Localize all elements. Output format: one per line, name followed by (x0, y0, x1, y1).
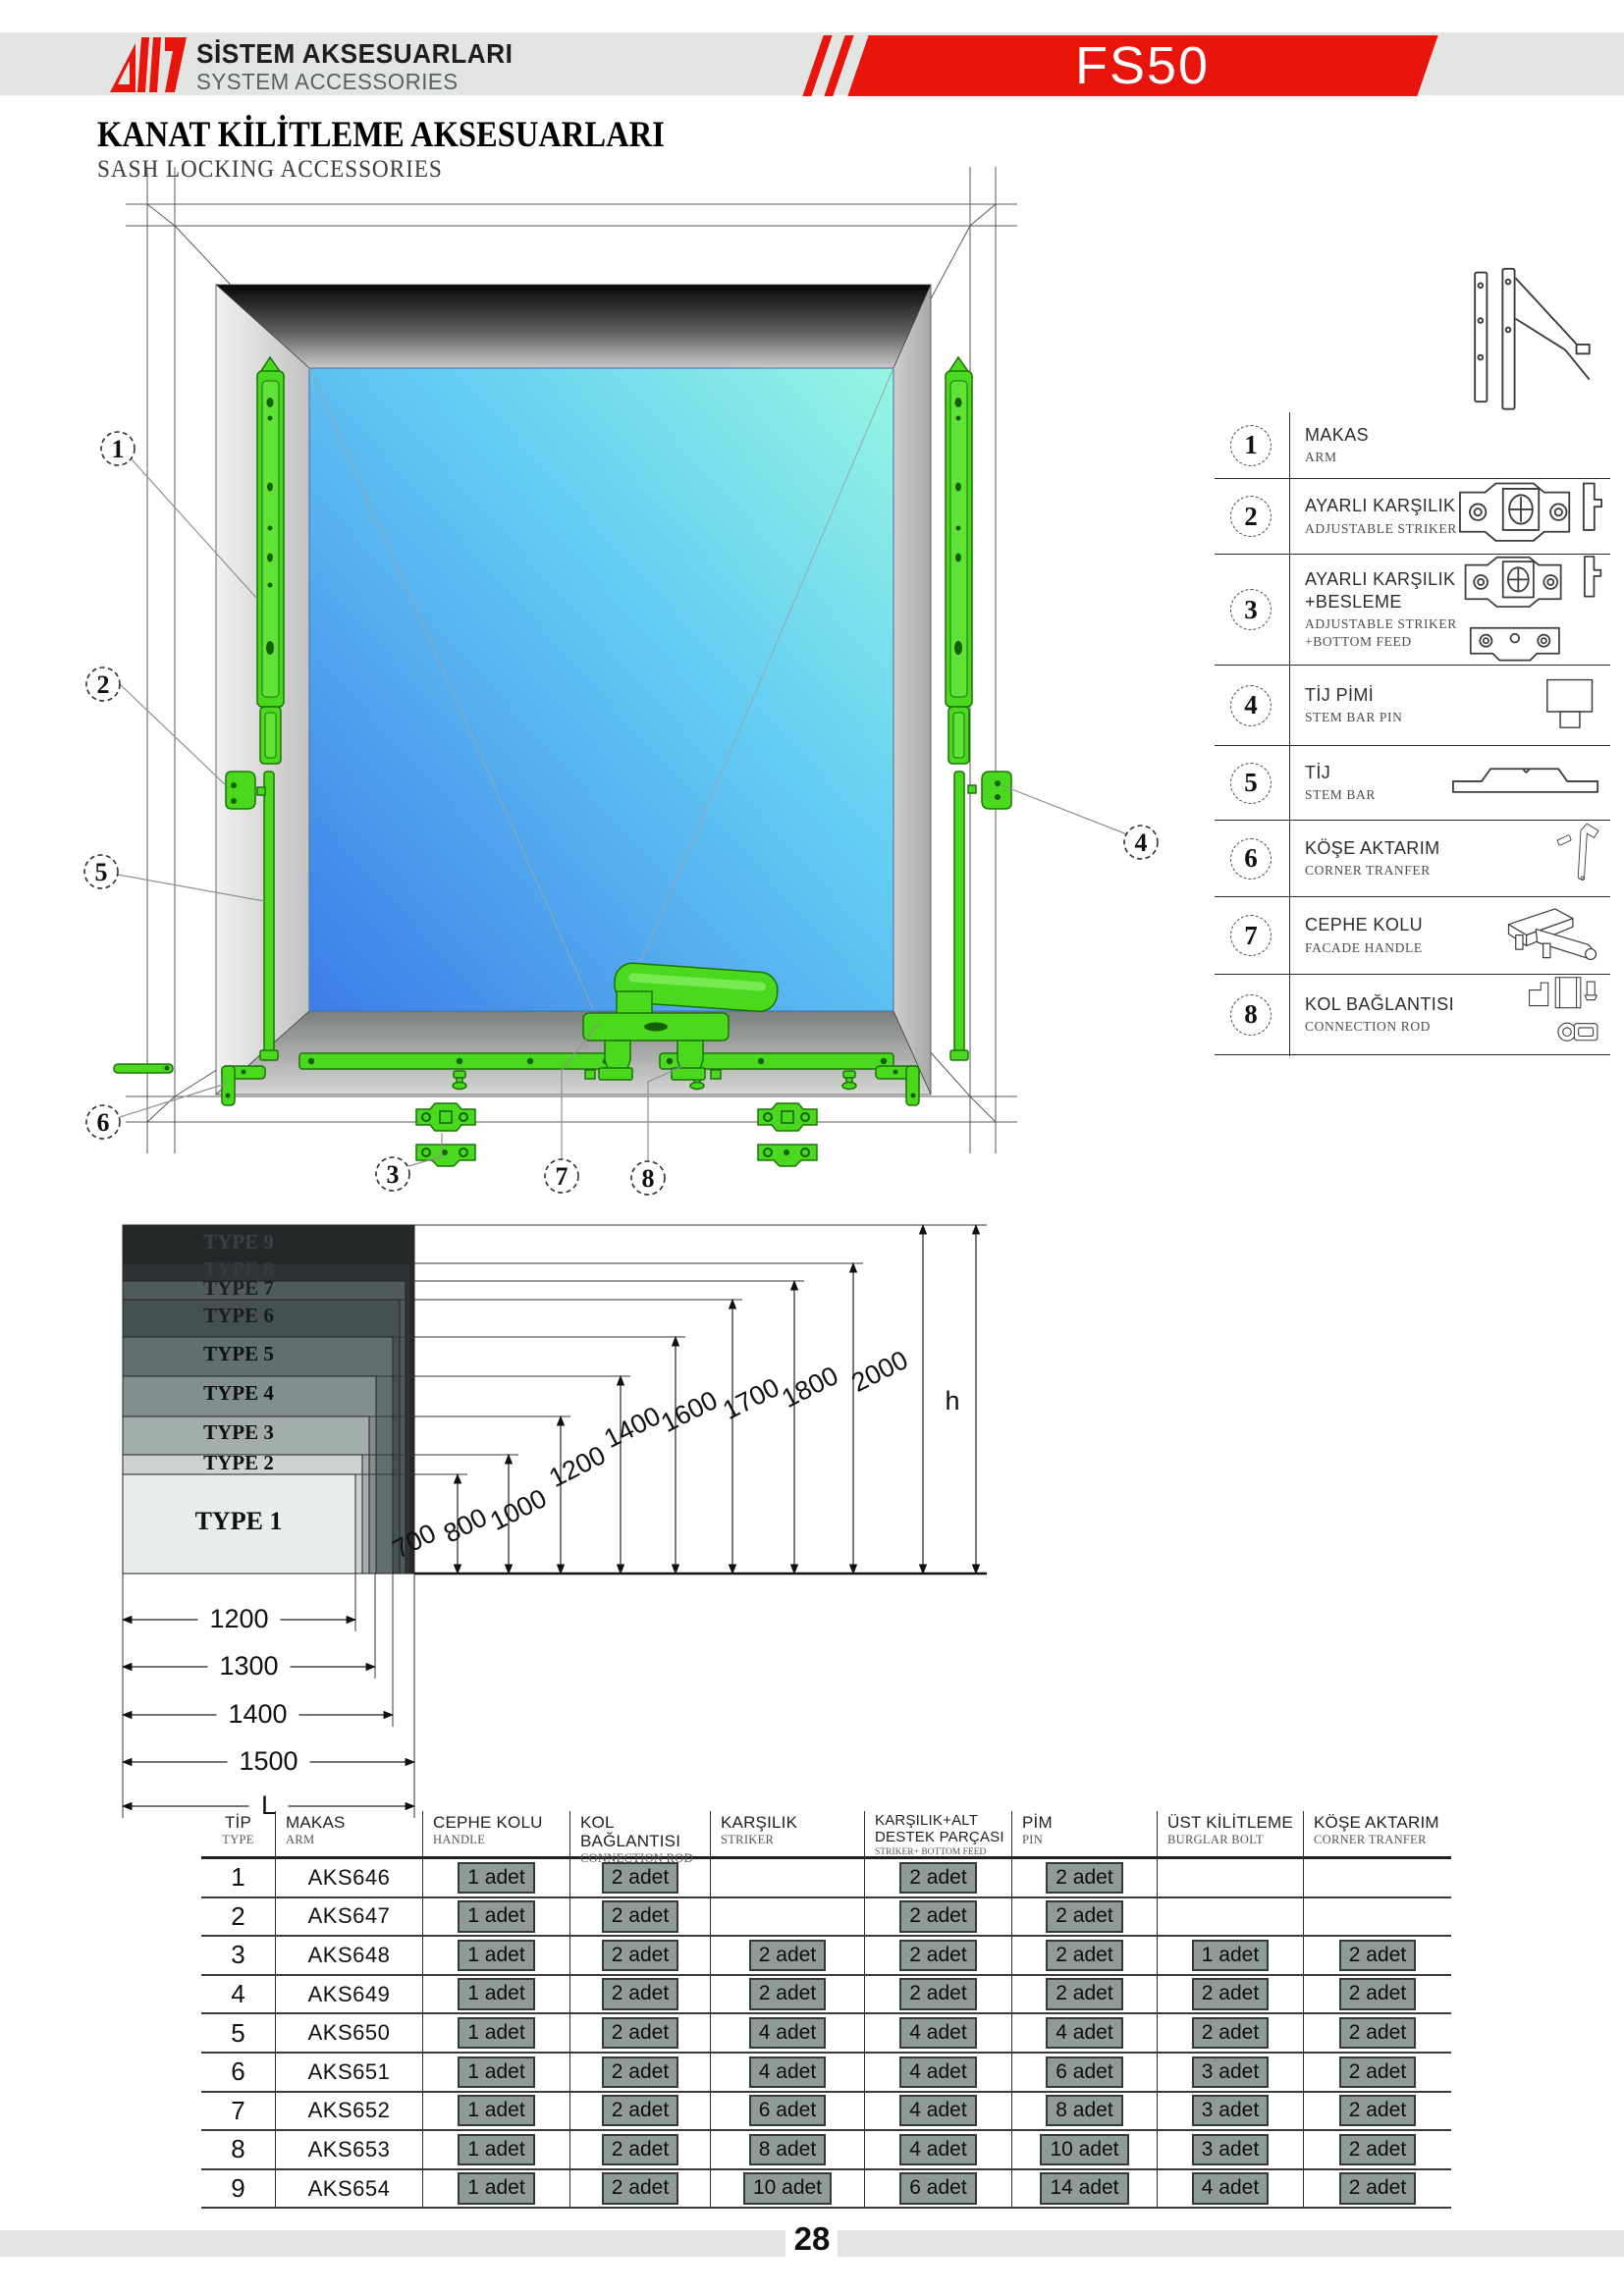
cell-qty-1: 1 adet (422, 2014, 569, 2052)
table-row-type-9: 9AKS6541 adet2 adet10 adet6 adet14 adet4… (201, 2170, 1451, 2210)
quantity-badge: 2 adet (899, 1940, 976, 1971)
cell-qty-2: 2 adet (569, 1937, 710, 1974)
cell-arm-code: AKS651 (275, 2054, 422, 2091)
column-header-tr: TİP (201, 1813, 275, 1832)
legend-item-7: 7CEPHE KOLUFACADE HANDLE (1215, 897, 1610, 975)
cell-qty-5: 6 adet (1011, 2054, 1157, 2091)
column-header-en: CORNER TRANFER (1314, 1833, 1451, 1847)
column-header-en: HANDLE (433, 1833, 569, 1847)
cell-qty-6 (1157, 1898, 1303, 1936)
cell-arm-code: AKS654 (275, 2170, 422, 2208)
cell-qty-3: 10 adet (710, 2170, 864, 2208)
svg-text:2: 2 (97, 670, 110, 699)
page-number: 28 (774, 2220, 850, 2258)
cell-qty-1: 1 adet (422, 2093, 569, 2130)
quantity-badge: 2 adet (602, 2095, 678, 2126)
legend-item-number: 5 (1230, 763, 1272, 804)
table-row-type-7: 7AKS6521 adet2 adet6 adet4 adet8 adet3 a… (201, 2093, 1451, 2132)
height-axis-label: h (945, 1386, 959, 1415)
cell-qty-6: 3 adet (1157, 2054, 1303, 2091)
cell-type: 6 (201, 2054, 275, 2091)
cell-qty-7: 2 adet (1303, 1976, 1451, 2013)
type-number: 4 (231, 1979, 244, 2009)
cell-type: 2 (201, 1898, 275, 1936)
legend-item-number: 3 (1230, 589, 1272, 630)
cell-qty-3: 4 adet (710, 2014, 864, 2052)
legend-item-number: 7 (1230, 915, 1272, 956)
legend-item-number: 8 (1230, 994, 1272, 1036)
cell-qty-2: 2 adet (569, 2014, 710, 2052)
svg-text:6: 6 (97, 1108, 110, 1137)
quantity-badge: 1 adet (458, 2095, 534, 2126)
cell-qty-2: 2 adet (569, 2170, 710, 2208)
striker-right (968, 772, 1011, 809)
cell-qty-5: 2 adet (1011, 1937, 1157, 1974)
cell-qty-6: 2 adet (1157, 1976, 1303, 2013)
adjustable-striker-bottom-feed-icon (1455, 550, 1604, 669)
cell-qty-3 (710, 1859, 864, 1896)
column-header-8: ÜST KİLİTLEMEBURGLAR BOLT (1157, 1811, 1303, 1866)
table-row-type-5: 5AKS6501 adet2 adet4 adet4 adet4 adet2 a… (201, 2014, 1451, 2054)
quantity-badge: 2 adet (602, 2056, 678, 2088)
cell-qty-7: 2 adet (1303, 1937, 1451, 1974)
cell-qty-5: 14 adet (1011, 2170, 1157, 2208)
quantity-badge: 2 adet (602, 2172, 678, 2204)
column-header-9: KÖŞE AKTARIMCORNER TRANFER (1303, 1811, 1451, 1866)
arm-code: AKS651 (308, 2059, 391, 2085)
cell-qty-1: 1 adet (422, 1976, 569, 2013)
cell-qty-5: 4 adet (1011, 2014, 1157, 2052)
quantity-badge: 2 adet (1339, 1940, 1416, 1971)
quantity-badge: 2 adet (1046, 1862, 1122, 1894)
cell-qty-2: 2 adet (569, 1859, 710, 1896)
quantity-badge: 10 adet (743, 2172, 832, 2204)
cell-type: 9 (201, 2170, 275, 2208)
cell-type: 8 (201, 2131, 275, 2168)
legend-label-tr: MAKAS (1305, 424, 1610, 447)
stem-bar-far-left (114, 1064, 173, 1073)
arm-icon (1462, 265, 1600, 427)
column-header-tr: ÜST KİLİTLEME (1167, 1813, 1303, 1832)
cell-type: 1 (201, 1859, 275, 1896)
cell-qty-3 (710, 1898, 864, 1936)
legend-item-8: 8KOL BAĞLANTISICONNECTION ROD (1215, 975, 1610, 1055)
callout-2: 2 (86, 667, 226, 785)
brand-logo (110, 35, 189, 94)
product-code-badge: FS50 (847, 35, 1437, 96)
corner-transfer-icon (1553, 820, 1604, 897)
cell-qty-1: 1 adet (422, 1898, 569, 1936)
height-dimension-label: 2000 (846, 1345, 912, 1398)
height-dimension-label: 1400 (599, 1401, 665, 1454)
legend-item-number: 2 (1230, 496, 1272, 537)
cell-type: 7 (201, 2093, 275, 2130)
quantity-badge: 4 adet (749, 2056, 826, 2088)
window-technical-drawing: 1 2 5 6 4 (69, 137, 1168, 1237)
footer-bar-left (0, 2230, 785, 2257)
bottom-striker-set-right (758, 1103, 817, 1166)
cell-qty-3: 2 adet (710, 1937, 864, 1974)
product-code: FS50 (1075, 35, 1210, 96)
column-header-tr: PİM (1022, 1813, 1157, 1832)
column-header-tr: KARŞILIK (721, 1813, 864, 1832)
cell-qty-5: 2 adet (1011, 1898, 1157, 1936)
arm-code: AKS653 (308, 2137, 391, 2163)
type-number: 9 (231, 2173, 244, 2204)
quantity-badge: 2 adet (1046, 1900, 1122, 1932)
facade-handle-icon (1500, 896, 1604, 976)
quantity-badge: 4 adet (899, 2017, 976, 2049)
cell-arm-code: AKS648 (275, 1937, 422, 1974)
cell-qty-6: 3 adet (1157, 2131, 1303, 2168)
cell-qty-7 (1303, 1898, 1451, 1936)
column-header-tr: KOL BAĞLANTISI (580, 1813, 710, 1850)
legend-item-number: 6 (1230, 838, 1272, 880)
column-header-tr: KÖŞE AKTARIM (1314, 1813, 1451, 1832)
quantity-badge: 2 adet (749, 1940, 826, 1971)
table-row-type-3: 3AKS6481 adet2 adet2 adet2 adet2 adet1 a… (201, 1937, 1451, 1976)
cell-type: 5 (201, 2014, 275, 2052)
length-dimension-label: 1400 (228, 1699, 287, 1729)
cell-qty-6 (1157, 1859, 1303, 1896)
quantity-badge: 1 adet (458, 1978, 534, 2009)
footer-bar-right (838, 2230, 1624, 2257)
cell-arm-code: AKS653 (275, 2131, 422, 2168)
legend-item-number: 4 (1230, 685, 1272, 726)
cell-qty-3: 6 adet (710, 2093, 864, 2130)
type-number: 8 (231, 2134, 244, 2164)
cell-qty-2: 2 adet (569, 2131, 710, 2168)
quantity-badge: 6 adet (1046, 2056, 1122, 2088)
cell-qty-7: 2 adet (1303, 2170, 1451, 2208)
stem-bar-pin-icon (1536, 672, 1604, 739)
column-header-6: KARŞILIK+ALT DESTEK PARÇASISTRIKER+ BOTT… (864, 1811, 1011, 1866)
cell-qty-4: 4 adet (864, 2054, 1011, 2091)
quantity-badge: 2 adet (1192, 1978, 1269, 2009)
quantity-badge: 4 adet (1192, 2172, 1269, 2204)
quantity-badge: 3 adet (1192, 2056, 1269, 2088)
column-header-en: BURGLAR BOLT (1167, 1833, 1303, 1847)
quantity-badge: 2 adet (1339, 2134, 1416, 2165)
quantity-badge: 2 adet (1339, 2056, 1416, 2088)
column-header-en: TYPE (201, 1833, 275, 1847)
quantity-badge: 8 adet (749, 2134, 826, 2165)
quantity-badge: 3 adet (1192, 2095, 1269, 2126)
height-dimension-label: 1000 (485, 1483, 551, 1536)
cell-qty-6: 4 adet (1157, 2170, 1303, 2208)
cell-arm-code: AKS649 (275, 1976, 422, 2013)
arm-code: AKS647 (308, 1903, 391, 1929)
quantity-badge: 4 adet (899, 2095, 976, 2126)
legend-item-number: 1 (1230, 425, 1272, 466)
stem-bar-icon (1447, 756, 1604, 810)
type-number: 6 (231, 2056, 244, 2087)
quantity-badge: 1 adet (458, 2172, 534, 2204)
length-dimension-label: 1300 (219, 1651, 278, 1681)
cell-qty-5: 2 adet (1011, 1976, 1157, 2013)
cell-qty-7: 2 adet (1303, 2131, 1451, 2168)
type-block-label: TYPE 2 (203, 1451, 274, 1474)
column-header-en: PIN (1022, 1833, 1157, 1847)
column-header-tr: KARŞILIK+ALT DESTEK PARÇASI (875, 1813, 1011, 1846)
column-header-7: PİMPIN (1011, 1811, 1157, 1866)
cell-qty-7: 2 adet (1303, 2054, 1451, 2091)
cell-qty-4: 2 adet (864, 1937, 1011, 1974)
type-number: 2 (231, 1901, 244, 1932)
length-dimension-label: 1200 (209, 1604, 268, 1633)
quantity-badge: 4 adet (899, 2056, 976, 2088)
cell-qty-2: 2 adet (569, 1898, 710, 1936)
column-header-tr: MAKAS (286, 1813, 422, 1832)
quantity-badge: 4 adet (749, 2017, 826, 2049)
quantity-badge: 2 adet (899, 1862, 976, 1894)
catalog-page: SİSTEM AKSESUARLARI SYSTEM ACCESSORIES F… (0, 0, 1624, 2296)
quantity-badge: 2 adet (602, 2134, 678, 2165)
quantity-badge: 2 adet (1339, 2095, 1416, 2126)
cell-type: 4 (201, 1976, 275, 2013)
quantity-badge: 2 adet (602, 1978, 678, 2009)
legend-item-1: 1MAKASARM (1215, 412, 1610, 479)
quantity-badge: 2 adet (899, 1900, 976, 1932)
table-row-type-1: 1AKS6461 adet2 adet2 adet2 adet (201, 1859, 1451, 1898)
svg-text:5: 5 (95, 858, 108, 886)
quantity-badge: 4 adet (899, 2134, 976, 2165)
quantity-badge: 1 adet (1192, 1940, 1269, 1971)
type-block-label: TYPE 3 (203, 1420, 274, 1444)
column-header-5: KARŞILIKSTRIKER (710, 1811, 864, 1866)
column-header-en: STRIKER+ BOTTOM FEED (875, 1847, 1011, 1857)
cell-qty-5: 10 adet (1011, 2131, 1157, 2168)
arm-code: AKS646 (308, 1865, 391, 1891)
type-block-label: TYPE 5 (203, 1342, 274, 1365)
cell-qty-5: 2 adet (1011, 1859, 1157, 1896)
quantity-badge: 2 adet (602, 2017, 678, 2049)
svg-text:8: 8 (642, 1164, 655, 1193)
quantity-badge: 2 adet (899, 1978, 976, 2009)
legend-item-3: 3AYARLI KARŞILIK +BESLEMEADJUSTABLE STRI… (1215, 555, 1610, 666)
cell-qty-4: 6 adet (864, 2170, 1011, 2208)
quantity-badge: 2 adet (1339, 2172, 1416, 2204)
column-header-en: STRIKER (721, 1833, 864, 1847)
cell-qty-1: 1 adet (422, 1937, 569, 1974)
table-header-row: TİPTYPEMAKASARMCEPHE KOLUHANDLEKOL BAĞLA… (201, 1811, 1451, 1859)
cell-qty-1: 1 adet (422, 2054, 569, 2091)
column-header-en: ARM (286, 1833, 422, 1847)
table-row-type-2: 2AKS6471 adet2 adet2 adet2 adet (201, 1898, 1451, 1938)
cell-qty-6: 1 adet (1157, 1937, 1303, 1974)
legend-item-2: 2AYARLI KARŞILIKADJUSTABLE STRIKER (1215, 479, 1610, 555)
height-dimension-label: 1700 (718, 1372, 784, 1425)
cell-qty-7 (1303, 1859, 1451, 1896)
type-block-label: TYPE 1 (195, 1507, 283, 1535)
cell-qty-4: 4 adet (864, 2093, 1011, 2130)
height-dimension-label: 1200 (544, 1440, 610, 1493)
cell-arm-code: AKS646 (275, 1859, 422, 1896)
quantity-badge: 1 adet (458, 2056, 534, 2088)
cell-qty-6: 2 adet (1157, 2014, 1303, 2052)
callout-4: 4 (1001, 785, 1158, 859)
cell-qty-4: 2 adet (864, 1898, 1011, 1936)
quantity-badge: 1 adet (458, 2134, 534, 2165)
quantity-badge: 8 adet (1046, 2095, 1122, 2126)
arm-code: AKS654 (308, 2176, 391, 2202)
cell-qty-2: 2 adet (569, 2054, 710, 2091)
cell-arm-code: AKS647 (275, 1898, 422, 1936)
stem-bar-right-vertical (950, 772, 968, 1060)
height-dimension-label: 1800 (777, 1361, 842, 1414)
brand-title: SİSTEM AKSESUARLARI (196, 38, 513, 70)
quantity-badge: 1 adet (458, 1900, 534, 1932)
arm-left (257, 357, 284, 764)
type-number: 5 (231, 2018, 244, 2049)
column-header-tr: CEPHE KOLU (433, 1813, 569, 1832)
quantity-badge: 3 adet (1192, 2134, 1269, 2165)
type-block-label: TYPE 6 (203, 1304, 274, 1327)
bottom-striker-set-left (416, 1103, 475, 1166)
legend-item-6: 6KÖŞE AKTARIMCORNER TRANFER (1215, 821, 1610, 897)
brand-subtitle: SYSTEM ACCESSORIES (196, 69, 459, 95)
type-size-diagram: TYPE 1TYPE 2TYPE 3TYPE 4TYPE 5TYPE 6TYPE… (79, 1217, 1041, 1841)
cell-qty-2: 2 adet (569, 1976, 710, 2013)
quantity-badge: 2 adet (602, 1900, 678, 1932)
quantity-badge: 2 adet (1339, 2017, 1416, 2049)
cell-qty-3: 2 adet (710, 1976, 864, 2013)
cell-qty-7: 2 adet (1303, 2093, 1451, 2130)
glass-pane (309, 368, 893, 1011)
column-header-1: TİPTYPE (201, 1811, 275, 1866)
arm-code: AKS650 (308, 2020, 391, 2046)
cell-qty-4: 2 adet (864, 1859, 1011, 1896)
cell-qty-3: 4 adet (710, 2054, 864, 2091)
quantity-badge: 6 adet (899, 2172, 976, 2204)
accessories-table: TİPTYPEMAKASARMCEPHE KOLUHANDLEKOL BAĞLA… (201, 1811, 1451, 2209)
arm-right (946, 357, 972, 764)
svg-text:7: 7 (556, 1162, 568, 1191)
quantity-badge: 2 adet (749, 1978, 826, 2009)
type-block-label: TYPE 9 (203, 1230, 274, 1254)
column-header-4: KOL BAĞLANTISICONNECTION ROD (569, 1811, 710, 1866)
callout-3: 3 (376, 1133, 442, 1191)
cell-type: 3 (201, 1937, 275, 1974)
quantity-badge: 2 adet (1046, 1940, 1122, 1971)
table-row-type-6: 6AKS6511 adet2 adet4 adet4 adet6 adet3 a… (201, 2054, 1451, 2093)
quantity-badge: 6 adet (749, 2095, 826, 2126)
svg-text:1: 1 (112, 435, 125, 463)
cell-qty-6: 3 adet (1157, 2093, 1303, 2130)
cell-arm-code: AKS652 (275, 2093, 422, 2130)
quantity-badge: 1 adet (458, 2017, 534, 2049)
quantity-badge: 10 adet (1040, 2134, 1128, 2165)
cell-qty-1: 1 adet (422, 2170, 569, 2208)
quantity-badge: 4 adet (1046, 2017, 1122, 2049)
table-row-type-8: 8AKS6531 adet2 adet8 adet4 adet10 adet3 … (201, 2131, 1451, 2170)
svg-text:4: 4 (1135, 828, 1148, 857)
cell-qty-1: 1 adet (422, 1859, 569, 1896)
table-row-type-4: 4AKS6491 adet2 adet2 adet2 adet2 adet2 a… (201, 1976, 1451, 2015)
quantity-badge: 2 adet (1046, 1978, 1122, 2009)
height-dimension-label: 1600 (656, 1385, 722, 1438)
cell-qty-4: 2 adet (864, 1976, 1011, 2013)
type-number: 7 (231, 2096, 244, 2126)
svg-text:3: 3 (387, 1160, 400, 1189)
parts-legend: 1MAKASARM2AYARLI KARŞILIKADJUSTABLE STRI… (1215, 412, 1610, 1056)
callout-6: 6 (86, 1084, 226, 1139)
length-dimension-label: 1500 (239, 1746, 298, 1776)
type-block-label: TYPE 4 (203, 1381, 274, 1405)
column-header-2: MAKASARM (275, 1811, 422, 1866)
quantity-badge: 2 adet (602, 1862, 678, 1894)
cell-qty-4: 4 adet (864, 2131, 1011, 2168)
cell-qty-2: 2 adet (569, 2093, 710, 2130)
legend-item-5: 5TİJSTEM BAR (1215, 746, 1610, 821)
type-block-label: TYPE 8 (203, 1257, 274, 1281)
arm-code: AKS648 (308, 1943, 391, 1968)
quantity-badge: 2 adet (602, 1940, 678, 1971)
connection-rod-icon (1523, 973, 1604, 1056)
height-dimension-label: 800 (439, 1502, 492, 1548)
arm-code: AKS649 (308, 1982, 391, 2007)
cell-qty-4: 4 adet (864, 2014, 1011, 2052)
cell-qty-7: 2 adet (1303, 2014, 1451, 2052)
quantity-badge: 14 adet (1040, 2172, 1128, 2204)
cell-qty-1: 1 adet (422, 2131, 569, 2168)
legend-item-4: 4TİJ PİMİSTEM BAR PIN (1215, 666, 1610, 746)
adjustable-striker-icon (1447, 478, 1604, 555)
quantity-badge: 2 adet (1339, 1978, 1416, 2009)
cell-arm-code: AKS650 (275, 2014, 422, 2052)
type-number: 1 (231, 1862, 244, 1893)
cell-qty-3: 8 adet (710, 2131, 864, 2168)
type-number: 3 (231, 1940, 244, 1970)
quantity-badge: 1 adet (458, 1940, 534, 1971)
cell-qty-5: 8 adet (1011, 2093, 1157, 2130)
legend-label-en: ARM (1305, 449, 1610, 466)
quantity-badge: 1 adet (458, 1862, 534, 1894)
quantity-badge: 2 adet (1192, 2017, 1269, 2049)
column-header-3: CEPHE KOLUHANDLE (422, 1811, 569, 1866)
arm-code: AKS652 (308, 2098, 391, 2123)
